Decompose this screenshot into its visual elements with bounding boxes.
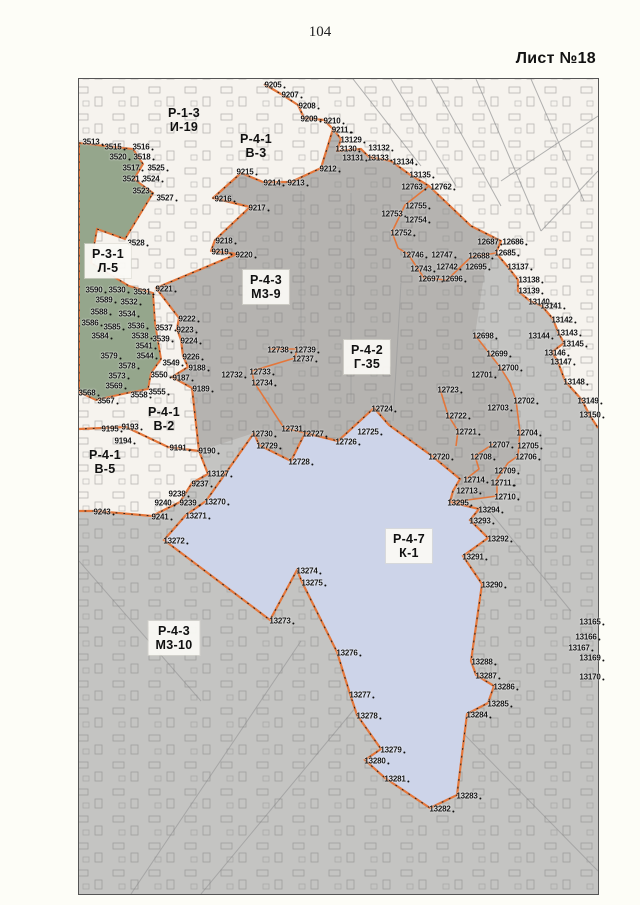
boundary-point-label-9210: 9210 bbox=[324, 117, 341, 126]
boundary-point-label-12685: 12685 bbox=[494, 249, 515, 258]
boundary-point-label-13279: 13279 bbox=[380, 746, 401, 755]
page-number: 104 bbox=[309, 24, 332, 41]
boundary-point-label-9220: 9220 bbox=[236, 251, 253, 260]
boundary-point-label-9215: 9215 bbox=[237, 168, 254, 177]
boundary-point-label-3568: 3568 bbox=[79, 389, 96, 398]
boundary-point-label-13139: 13139 bbox=[518, 287, 539, 296]
boundary-point-label-13166: 13166 bbox=[575, 633, 596, 642]
boundary-point-label-13274: 13274 bbox=[296, 567, 317, 576]
boundary-point-label-9239: 9239 bbox=[180, 499, 197, 508]
boundary-point-label-12714: 12714 bbox=[463, 476, 484, 485]
boundary-point-label-13144: 13144 bbox=[528, 332, 549, 341]
boundary-point-label-3558: 3558 bbox=[131, 391, 148, 400]
boundary-point-label-9213: 9213 bbox=[288, 179, 305, 188]
boundary-point-label-13284: 13284 bbox=[466, 711, 487, 720]
boundary-point-label-3523: 3523 bbox=[133, 187, 150, 196]
boundary-point-label-3517: 3517 bbox=[123, 164, 140, 173]
boundary-point-label-3515: 3515 bbox=[105, 143, 122, 152]
boundary-point-label-13150: 13150 bbox=[579, 411, 600, 420]
boundary-point-label-12720: 12720 bbox=[428, 453, 449, 462]
boundary-point-label-3513: 3513 bbox=[83, 138, 100, 147]
boundary-point-label-13271: 13271 bbox=[185, 512, 206, 521]
boundary-point-label-3549: 3549 bbox=[163, 359, 180, 368]
zone-label-М3-10: Р-4-3М3-10 bbox=[149, 621, 200, 655]
boundary-point-label-3589: 3589 bbox=[96, 296, 113, 305]
boundary-point-label-12763: 12763 bbox=[401, 183, 422, 192]
boundary-point-label-12727: 12727 bbox=[302, 430, 323, 439]
boundary-point-label-9208: 9208 bbox=[299, 102, 316, 111]
boundary-point-label-12688: 12688 bbox=[468, 252, 489, 261]
boundary-point-label-12729: 12729 bbox=[256, 442, 277, 451]
boundary-point-label-13292: 13292 bbox=[487, 535, 508, 544]
boundary-point-label-3567: 3567 bbox=[98, 397, 115, 406]
boundary-point-label-9241: 9241 bbox=[152, 513, 169, 522]
scanned-map-page: { "page": { "number": "104", "sheet_labe… bbox=[0, 0, 640, 905]
boundary-point-label-9223: 9223 bbox=[177, 326, 194, 335]
boundary-point-label-12708: 12708 bbox=[470, 453, 491, 462]
boundary-point-label-12721: 12721 bbox=[455, 428, 476, 437]
boundary-point-label-12755: 12755 bbox=[405, 202, 426, 211]
boundary-point-label-3538: 3538 bbox=[132, 332, 149, 341]
boundary-point-label-13133: 13133 bbox=[367, 154, 388, 163]
boundary-point-label-13148: 13148 bbox=[563, 378, 584, 387]
boundary-point-label-12747: 12747 bbox=[431, 251, 452, 260]
boundary-point-label-12738: 12738 bbox=[267, 346, 288, 355]
boundary-point-label-9224: 9224 bbox=[181, 337, 198, 346]
boundary-point-label-13143: 13143 bbox=[556, 329, 577, 338]
boundary-point-label-3536: 3536 bbox=[128, 322, 145, 331]
boundary-point-label-9191: 9191 bbox=[170, 444, 187, 453]
boundary-point-label-13283: 13283 bbox=[456, 792, 477, 801]
boundary-point-label-9219: 9219 bbox=[212, 248, 229, 257]
boundary-point-label-3550: 3550 bbox=[151, 371, 168, 380]
boundary-point-label-13293: 13293 bbox=[469, 517, 490, 526]
boundary-point-label-13272: 13272 bbox=[163, 537, 184, 546]
boundary-point-label-3541: 3541 bbox=[136, 342, 153, 351]
boundary-point-label-13295: 13295 bbox=[447, 499, 468, 508]
boundary-point-label-3590: 3590 bbox=[86, 286, 103, 295]
boundary-point-label-12725: 12725 bbox=[357, 428, 378, 437]
boundary-point-label-3573: 3573 bbox=[109, 372, 126, 381]
boundary-point-label-3584: 3584 bbox=[92, 332, 109, 341]
boundary-point-label-13277: 13277 bbox=[349, 691, 370, 700]
boundary-point-label-13290: 13290 bbox=[481, 581, 502, 590]
zone-label-В-3: Р-4-1В-3 bbox=[240, 132, 272, 160]
boundary-point-label-9189: 9189 bbox=[193, 385, 210, 394]
boundary-point-label-12737: 12737 bbox=[292, 355, 313, 364]
boundary-point-label-13167: 13167 bbox=[568, 644, 589, 653]
boundary-point-label-13138: 13138 bbox=[518, 276, 539, 285]
boundary-point-label-3539: 3539 bbox=[153, 335, 170, 344]
boundary-point-label-13132: 13132 bbox=[368, 144, 389, 153]
boundary-point-label-12711: 12711 bbox=[491, 479, 512, 488]
boundary-point-label-12695: 12695 bbox=[465, 263, 486, 272]
map[interactable]: 3513351535163520351835173525352135243523… bbox=[78, 78, 599, 895]
boundary-point-label-9205: 9205 bbox=[265, 81, 282, 90]
boundary-point-label-13286: 13286 bbox=[493, 683, 514, 692]
boundary-point-label-12734: 12734 bbox=[251, 379, 272, 388]
boundary-point-label-13275: 13275 bbox=[301, 579, 322, 588]
boundary-point-label-12742: 12742 bbox=[436, 263, 457, 272]
boundary-point-label-3520: 3520 bbox=[110, 153, 127, 162]
boundary-point-label-3555: 3555 bbox=[149, 388, 166, 397]
boundary-point-label-9188: 9188 bbox=[189, 364, 206, 373]
boundary-point-label-3544: 3544 bbox=[137, 352, 154, 361]
zone-label-В-5: Р-4-1В-5 bbox=[89, 448, 121, 476]
zone-label-Л-5: Р-3-1Л-5 bbox=[85, 244, 131, 278]
boundary-point-label-12722: 12722 bbox=[445, 412, 466, 421]
boundary-point-label-12706: 12706 bbox=[515, 453, 536, 462]
boundary-point-label-9217: 9217 bbox=[249, 204, 266, 213]
boundary-point-label-9218: 9218 bbox=[216, 237, 233, 246]
boundary-point-label-13149: 13149 bbox=[577, 397, 598, 406]
boundary-point-label-3524: 3524 bbox=[143, 175, 160, 184]
boundary-point-label-3585: 3585 bbox=[104, 323, 121, 332]
boundary-point-label-3527: 3527 bbox=[157, 194, 174, 203]
boundary-point-label-12743: 12743 bbox=[410, 265, 431, 274]
boundary-point-label-12704: 12704 bbox=[516, 429, 537, 438]
boundary-point-label-12762: 12762 bbox=[430, 183, 451, 192]
boundary-point-label-9190: 9190 bbox=[199, 447, 216, 456]
boundary-point-label-12733: 12733 bbox=[249, 368, 270, 377]
boundary-point-label-12699: 12699 bbox=[486, 350, 507, 359]
boundary-point-label-9212: 9212 bbox=[320, 165, 337, 174]
boundary-point-label-3579: 3579 bbox=[101, 352, 118, 361]
boundary-point-label-9226: 9226 bbox=[183, 353, 200, 362]
boundary-point-label-9221: 9221 bbox=[156, 285, 173, 294]
boundary-point-label-9193: 9193 bbox=[122, 423, 139, 432]
boundary-point-label-3586: 3586 bbox=[82, 319, 99, 328]
boundary-point-label-13137: 13137 bbox=[507, 263, 528, 272]
boundary-point-label-12752: 12752 bbox=[390, 229, 411, 238]
boundary-point-label-13285: 13285 bbox=[487, 700, 508, 709]
boundary-point-label-12732: 12732 bbox=[221, 371, 242, 380]
boundary-point-label-13280: 13280 bbox=[364, 757, 385, 766]
boundary-point-label-13130: 13130 bbox=[335, 145, 356, 154]
boundary-point-label-13270: 13270 bbox=[204, 498, 225, 507]
boundary-point-label-13291: 13291 bbox=[462, 553, 483, 562]
boundary-point-label-12710: 12710 bbox=[494, 493, 515, 502]
boundary-point-label-13131: 13131 bbox=[342, 154, 363, 163]
boundary-point-label-3532: 3532 bbox=[121, 298, 138, 307]
boundary-point-label-13135: 13135 bbox=[409, 171, 430, 180]
boundary-point-label-12707: 12707 bbox=[488, 441, 509, 450]
boundary-point-label-13127: 13127 bbox=[207, 470, 228, 479]
boundary-point-label-3534: 3534 bbox=[119, 310, 136, 319]
boundary-point-label-3530: 3530 bbox=[109, 286, 126, 295]
boundary-point-label-13145: 13145 bbox=[562, 340, 583, 349]
boundary-point-label-3525: 3525 bbox=[148, 164, 165, 173]
boundary-point-label-3588: 3588 bbox=[91, 308, 108, 317]
boundary-point-label-3521: 3521 bbox=[123, 175, 140, 184]
boundary-point-label-12697: 12697 bbox=[418, 275, 439, 284]
boundary-point-label-13276: 13276 bbox=[336, 649, 357, 658]
boundary-point-label-12701: 12701 bbox=[471, 371, 492, 380]
boundary-point-label-9238: 9238 bbox=[169, 490, 186, 499]
boundary-point-label-3569: 3569 bbox=[106, 382, 123, 391]
boundary-point-label-9214: 9214 bbox=[264, 179, 281, 188]
boundary-point-label-12698: 12698 bbox=[472, 332, 493, 341]
boundary-point-label-13129: 13129 bbox=[340, 136, 361, 145]
boundary-point-label-13170: 13170 bbox=[579, 673, 600, 682]
boundary-point-label-13281: 13281 bbox=[384, 775, 405, 784]
boundary-point-label-3516: 3516 bbox=[133, 143, 150, 152]
boundary-point-label-12723: 12723 bbox=[437, 386, 458, 395]
boundary-point-label-13294: 13294 bbox=[478, 506, 499, 515]
boundary-point-label-13147: 13147 bbox=[550, 358, 571, 367]
boundary-point-label-12687: 12687 bbox=[477, 238, 498, 247]
boundary-point-label-12724: 12724 bbox=[371, 405, 392, 414]
boundary-point-label-9222: 9222 bbox=[179, 315, 196, 324]
boundary-point-label-3518: 3518 bbox=[134, 153, 151, 162]
boundary-point-label-12746: 12746 bbox=[402, 251, 423, 260]
boundary-point-label-9207: 9207 bbox=[282, 91, 299, 100]
boundary-point-label-13146: 13146 bbox=[544, 349, 565, 358]
boundary-point-label-9237: 9237 bbox=[192, 480, 209, 489]
zone-label-М3-9: Р-4-3М3-9 bbox=[243, 270, 289, 304]
boundary-point-label-12700: 12700 bbox=[497, 364, 518, 373]
boundary-point-label-12739: 12739 bbox=[294, 346, 315, 355]
boundary-point-label-12754: 12754 bbox=[405, 216, 426, 225]
boundary-point-label-12728: 12728 bbox=[288, 458, 309, 467]
boundary-point-label-12702: 12702 bbox=[513, 397, 534, 406]
boundary-point-label-9211: 9211 bbox=[332, 126, 349, 135]
zone-label-В-2: Р-4-1В-2 bbox=[148, 405, 180, 433]
boundary-point-label-12696: 12696 bbox=[441, 275, 462, 284]
boundary-point-label-3578: 3578 bbox=[119, 362, 136, 371]
boundary-point-label-13287: 13287 bbox=[475, 672, 496, 681]
boundary-point-label-9243: 9243 bbox=[94, 508, 111, 517]
boundary-point-label-13288: 13288 bbox=[471, 658, 492, 667]
boundary-point-label-9209: 9209 bbox=[301, 115, 318, 124]
boundary-point-label-9216: 9216 bbox=[215, 195, 232, 204]
boundary-point-label-13141: 13141 bbox=[540, 302, 561, 311]
boundary-point-label-13165: 13165 bbox=[579, 618, 600, 627]
boundary-point-label-12703: 12703 bbox=[487, 404, 508, 413]
zone-label-Г-35: Р-4-2Г-35 bbox=[344, 340, 390, 374]
boundary-point-label-9187: 9187 bbox=[173, 374, 190, 383]
zone-label-К-1: Р-4-7К-1 bbox=[386, 529, 432, 563]
boundary-point-label-3537: 3537 bbox=[156, 324, 173, 333]
boundary-point-label-12713: 12713 bbox=[456, 487, 477, 496]
boundary-point-label-13169: 13169 bbox=[579, 654, 600, 663]
boundary-point-label-13278: 13278 bbox=[356, 712, 377, 721]
boundary-point-label-12705: 12705 bbox=[517, 442, 538, 451]
boundary-point-label-12726: 12726 bbox=[335, 438, 356, 447]
boundary-point-label-9194: 9194 bbox=[115, 437, 132, 446]
boundary-point-label-3531: 3531 bbox=[134, 288, 151, 297]
boundary-point-label-12686: 12686 bbox=[502, 238, 523, 247]
boundary-point-label-13282: 13282 bbox=[429, 805, 450, 814]
boundary-point-label-12753: 12753 bbox=[381, 210, 402, 219]
boundary-point-label-12731: 12731 bbox=[281, 425, 302, 434]
boundary-point-label-12730: 12730 bbox=[251, 430, 272, 439]
zone-label-И-19: Р-1-3И-19 bbox=[168, 106, 200, 134]
boundary-point-label-9195: 9195 bbox=[102, 425, 119, 434]
boundary-point-label-12709: 12709 bbox=[494, 467, 515, 476]
sheet-label: Лист №18 bbox=[516, 50, 596, 68]
boundary-point-label-9240: 9240 bbox=[155, 499, 172, 508]
boundary-point-label-13142: 13142 bbox=[551, 316, 572, 325]
boundary-point-label-13273: 13273 bbox=[269, 617, 290, 626]
boundary-point-label-13134: 13134 bbox=[392, 158, 413, 167]
